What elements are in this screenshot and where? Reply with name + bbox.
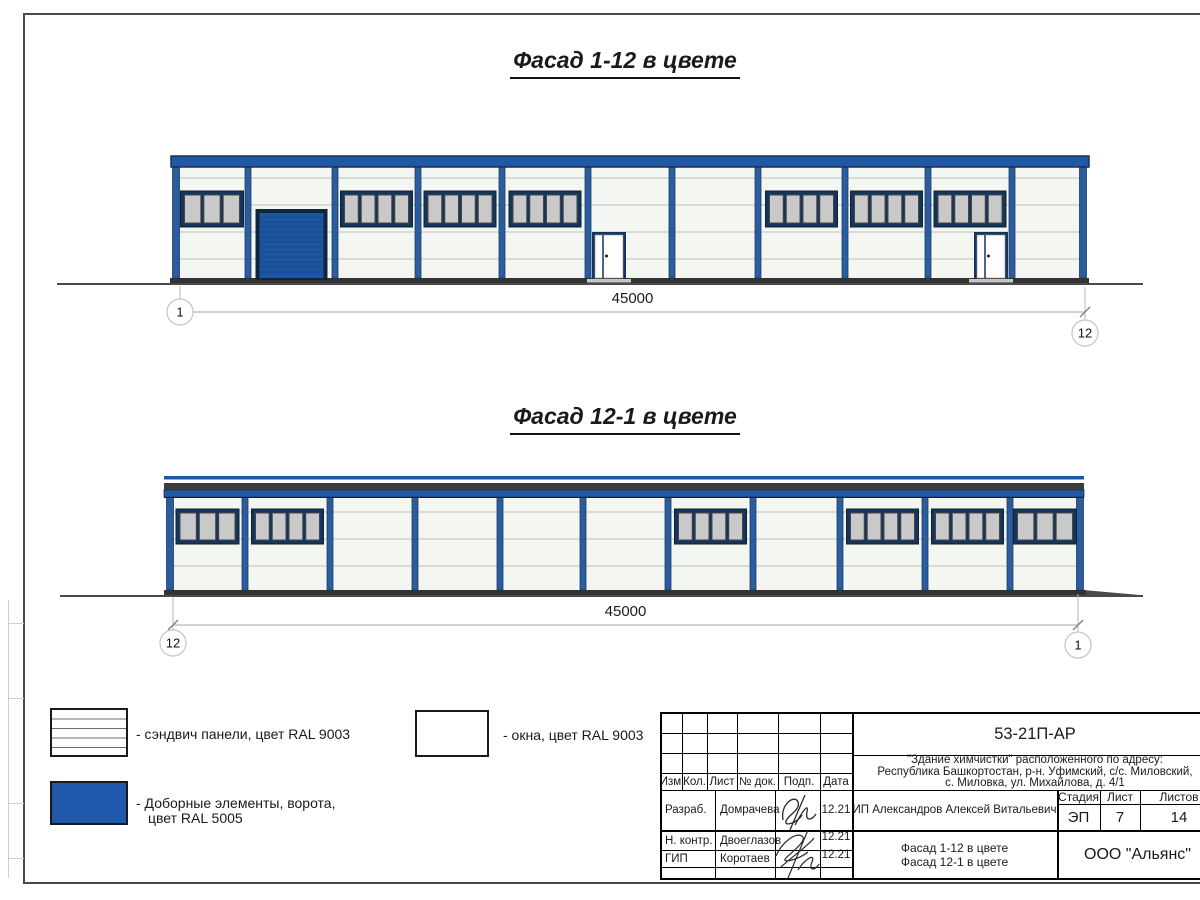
window-4-pane <box>847 509 919 544</box>
tb-role-1: Разраб. <box>662 790 718 830</box>
facade-1-title: Фасад 1-12 в цвете <box>445 47 805 79</box>
tb-sheets-value: 14 <box>1140 804 1200 830</box>
dimension: 45000121 <box>160 594 1091 658</box>
facade-1-12: 45000112 <box>57 156 1143 346</box>
signature-2 <box>772 826 822 880</box>
dimension-label: 45000 <box>612 290 654 307</box>
tb-role-3: ГИП <box>662 850 718 867</box>
tb-name-3: Коротаев <box>717 850 778 867</box>
window-4-pane <box>424 191 496 227</box>
legend-swatch-blue <box>50 781 128 825</box>
tb-col-izm: Изм. <box>662 773 682 790</box>
tb-col-data: Дата <box>820 773 852 790</box>
dimension: 45000112 <box>167 286 1098 346</box>
window-4-pane <box>675 509 747 544</box>
window-4-pane <box>766 191 838 227</box>
tb-date-1: 12.21 <box>820 790 852 830</box>
tb-col-podp: Подп. <box>778 773 820 790</box>
axis-label: 12 <box>166 636 180 651</box>
tb-date-2: 12.21 <box>820 828 852 846</box>
tb-date-3: 12.21 <box>820 846 852 863</box>
tb-col-list: Лист <box>707 773 737 790</box>
window-3-pane <box>181 191 244 227</box>
window-4-pane <box>851 191 923 227</box>
title-block: Изм. Кол. Лист № док. Подп. Дата Разраб.… <box>660 712 1200 880</box>
tb-sheet-title: Фасад 1-12 в цвете Фасад 12-1 в цвете <box>852 832 1057 878</box>
tb-name-1: Домрачева <box>717 790 778 830</box>
tb-col-kol: Кол. <box>682 773 707 790</box>
dimension-label: 45000 <box>605 603 647 620</box>
window-3-pane <box>176 509 239 544</box>
axis-label: 12 <box>1078 326 1092 341</box>
window-4-pane <box>252 509 324 544</box>
legend-swatch-panels <box>50 708 128 757</box>
tb-stage-value: ЭП <box>1057 804 1100 830</box>
tb-sheet-label: Лист <box>1100 790 1140 804</box>
tb-name-2: Двоеглазов <box>717 832 778 850</box>
tb-stage-label: Стадия <box>1057 790 1100 804</box>
roller-gate <box>256 209 328 280</box>
tb-project-address: "Здание химчистки" расположенного по адр… <box>852 755 1200 790</box>
entrance-door <box>969 232 1013 283</box>
tb-role-2: Н. контр. <box>662 832 718 850</box>
legend-label-panels: - сэндвич панели, цвет RAL 9003 <box>136 726 350 742</box>
legend-label-blue-2: цвет RAL 5005 <box>148 810 243 826</box>
axis-label: 1 <box>176 305 183 320</box>
tb-col-ndok: № док. <box>737 773 778 790</box>
legend-label-blue-1: - Доборные элементы, ворота, <box>136 795 336 811</box>
window-4-pane <box>932 509 1004 544</box>
tb-sheet-value: 7 <box>1100 804 1140 830</box>
tb-client: ИП Александров Алексей Витальевич <box>852 790 1057 830</box>
facade-2-title: Фасад 12-1 в цвете <box>445 403 805 435</box>
tb-company: ООО "Альянс" <box>1057 832 1200 878</box>
tb-doc-code: 53-21П-АР <box>852 714 1200 755</box>
legend-swatch-windows <box>415 710 489 757</box>
drawing-sheet: 4500011245000121 Фасад 1-12 в цвете Фаса… <box>0 0 1200 900</box>
tb-sheets-label: Листов <box>1140 790 1200 804</box>
axis-label: 1 <box>1074 638 1081 653</box>
facade-12-1: 45000121 <box>60 476 1143 658</box>
window-3-pane <box>1014 509 1077 544</box>
window-4-pane <box>934 191 1006 227</box>
entrance-door <box>587 232 631 283</box>
window-4-pane <box>341 191 413 227</box>
legend-label-windows: - окна, цвет RAL 9003 <box>503 727 643 743</box>
window-4-pane <box>509 191 581 227</box>
